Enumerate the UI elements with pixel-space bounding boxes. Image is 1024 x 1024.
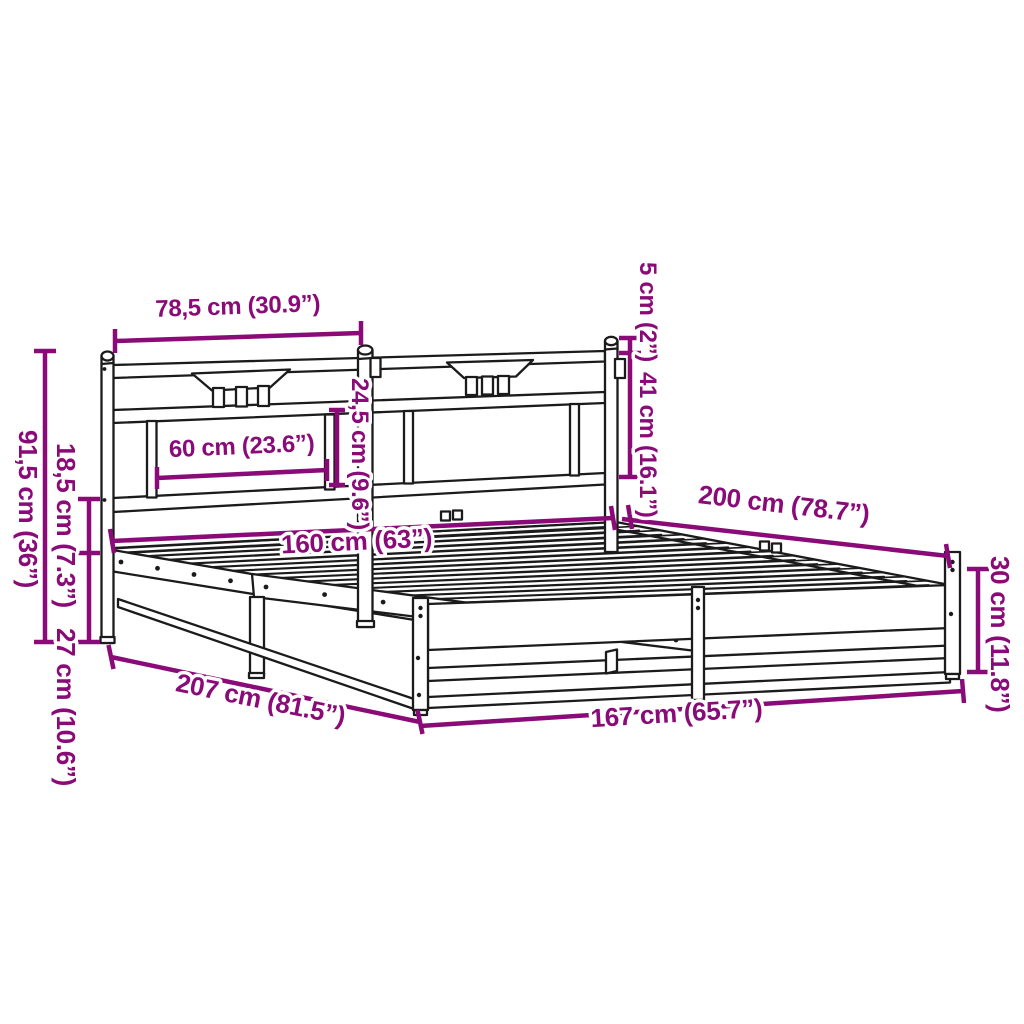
dim-panel-opening-width [157, 459, 327, 489]
bed-frame-drawing [101, 337, 961, 715]
label-side-frame-height: 30 cm (11.8”) [985, 556, 1015, 713]
dimension-diagram-canvas: 78,5 cm (30.9”) 5 cm (2”) 41 cm (16.1”) … [0, 0, 1024, 1024]
label-panel-opening-width: 60 cm (23.6”) [168, 430, 315, 463]
label-post-cap-height: 5 cm (2”) [634, 262, 661, 362]
bed-frame-dimension-diagram: 78,5 cm (30.9”) 5 cm (2”) 41 cm (16.1”) … [0, 0, 1024, 1024]
label-platform-height: 27 cm (10.6”) [51, 628, 81, 786]
foot-right-post [945, 552, 960, 679]
label-headboard-section-width: 78,5 cm (30.9”) [155, 290, 321, 323]
label-headboard-height: 91,5 cm (36”) [13, 430, 43, 588]
label-bed-width: 160 cm (63”) [280, 522, 432, 559]
headboard-left-post [101, 352, 115, 644]
label-headboard-clearance: 18,5 cm (7.3”) [51, 443, 81, 608]
dim-headboard-section-width [115, 321, 361, 353]
label-headboard-rail-to-base: 41 cm (16.1”) [634, 372, 661, 518]
foot-left-post [413, 598, 428, 715]
label-panel-opening-height: 24,5 cm (9.6”) [346, 378, 373, 530]
label-bed-length: 200 cm (78.7”) [697, 479, 871, 529]
foot-center-bracket [692, 587, 704, 704]
